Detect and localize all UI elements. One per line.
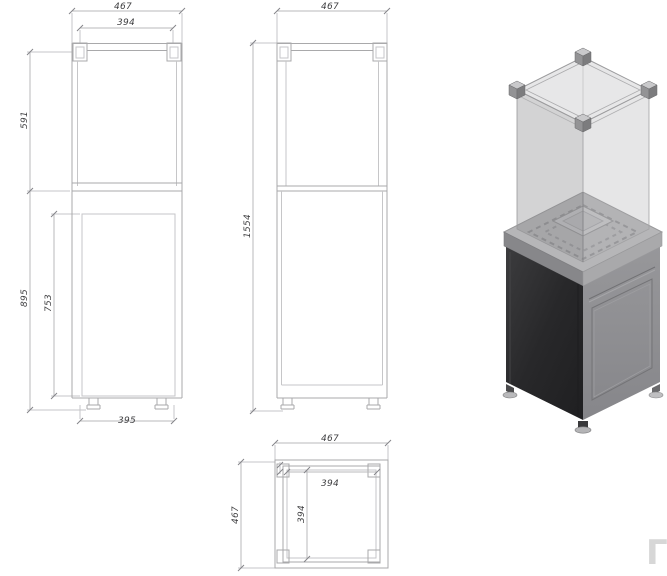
dim-plan-overall-depth: 467 bbox=[231, 506, 241, 524]
drawing-linework bbox=[0, 0, 667, 576]
front-view-linework bbox=[27, 8, 185, 424]
dim-front-door-height: 753 bbox=[44, 294, 54, 312]
dim-front-glass-section-height: 591 bbox=[20, 111, 30, 129]
dim-plan-overall-width: 467 bbox=[321, 434, 339, 444]
dim-front-body-height: 895 bbox=[20, 289, 30, 307]
dim-side-overall-height: 1554 bbox=[243, 214, 253, 238]
dim-front-overall-width: 467 bbox=[114, 2, 132, 12]
dim-plan-inner-depth: 394 bbox=[297, 505, 307, 523]
watermark-glyph: Γ bbox=[646, 536, 667, 570]
side-view-linework bbox=[250, 8, 390, 414]
technical-drawing-canvas: 467 394 591 895 753 395 467 1554 467 467… bbox=[0, 0, 667, 576]
plan-view-linework bbox=[238, 440, 391, 571]
dim-front-glass-frame-width: 394 bbox=[117, 18, 135, 28]
render-3d bbox=[503, 48, 663, 433]
dim-front-base-width: 395 bbox=[118, 416, 136, 426]
dim-plan-inner-width: 394 bbox=[321, 479, 339, 489]
dim-side-overall-depth: 467 bbox=[321, 2, 339, 12]
